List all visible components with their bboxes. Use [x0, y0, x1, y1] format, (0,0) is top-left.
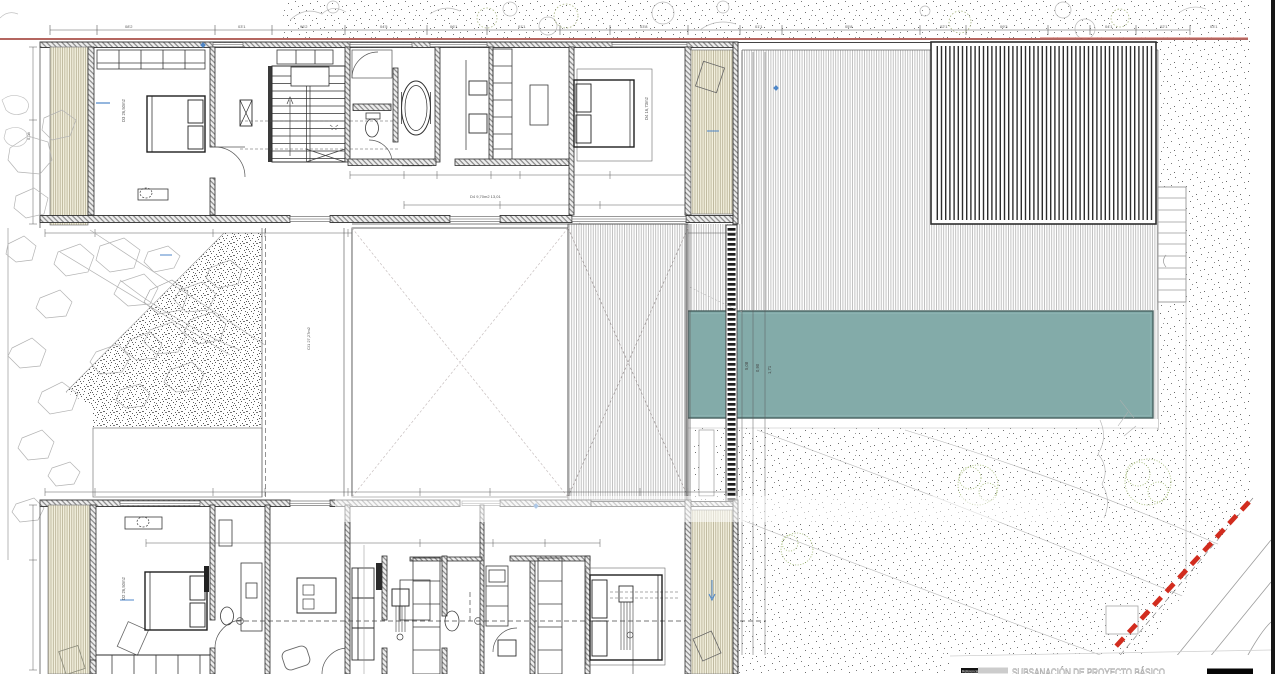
- svg-text:01'1: 01'1: [755, 24, 763, 29]
- svg-text:D3 26,50m2: D3 26,50m2: [121, 99, 126, 122]
- svg-text:02'1: 02'1: [940, 24, 948, 29]
- svg-text:09'3: 09'3: [1000, 24, 1008, 29]
- svg-text:03'1: 03'1: [238, 24, 246, 29]
- svg-text:D4 16,73m2: D4 16,73m2: [644, 97, 649, 120]
- svg-text:03'8: 03'8: [640, 24, 648, 29]
- svg-text:04'1: 04'1: [1105, 24, 1113, 29]
- svg-text:04'5: 04'5: [380, 24, 388, 29]
- svg-text:SUBSANACIÓN DE PROYECTO BÁSICO: SUBSANACIÓN DE PROYECTO BÁSICO: [1012, 666, 1165, 674]
- svg-text:C/1 27,27m2: C/1 27,27m2: [306, 326, 311, 350]
- svg-text:06'1: 06'1: [450, 24, 458, 29]
- svg-text:5,08: 5,08: [26, 131, 31, 140]
- svg-text:01'1: 01'1: [518, 24, 526, 29]
- svg-text:02'1: 02'1: [1160, 24, 1168, 29]
- svg-text:Referencia: Referencia: [962, 669, 979, 673]
- svg-text:D2 26,50m2: D2 26,50m2: [121, 577, 126, 600]
- svg-text:05'8: 05'8: [845, 24, 853, 29]
- svg-text:08'2: 08'2: [125, 24, 133, 29]
- svg-text:03'1: 03'1: [1210, 24, 1218, 29]
- svg-text:1,71: 1,71: [767, 365, 772, 374]
- svg-text:96'2: 96'2: [300, 24, 308, 29]
- svg-text:5,08: 5,08: [744, 361, 749, 370]
- svg-text:D4 9,70m2 13,01: D4 9,70m2 13,01: [470, 194, 501, 199]
- svg-text:0,90: 0,90: [755, 363, 760, 372]
